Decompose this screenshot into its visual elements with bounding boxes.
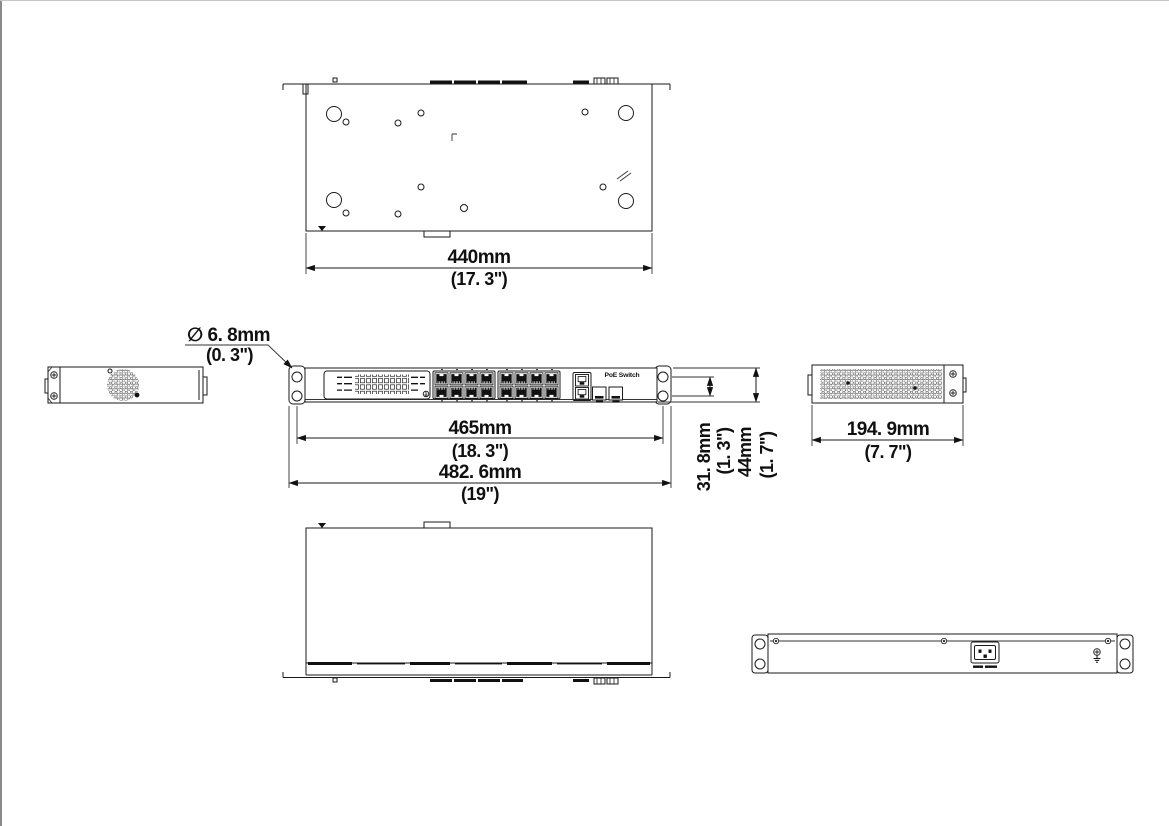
case-screw-icon	[773, 638, 778, 643]
dim-label-overall-width-in: (19")	[461, 484, 500, 504]
dim-label-top-width-mm: 440mm	[448, 247, 511, 268]
rj45-port	[545, 386, 558, 398]
left-side-view	[45, 367, 207, 403]
side-vent-grid-icon	[820, 369, 942, 399]
rear-right-rack-ear	[1117, 635, 1133, 673]
dim-label-overall-height-in: (1. 7")	[757, 431, 777, 479]
rj45-port	[480, 373, 493, 385]
rj45-port	[465, 373, 478, 385]
uplink-rj45-port	[576, 388, 589, 400]
technical-drawing: 440mm (17. 3")	[0, 0, 1169, 826]
rj45-port	[530, 386, 543, 398]
product-label: PoE Switch	[604, 372, 639, 379]
front-width-dimensions: 465mm (18. 3") 482. 6mm (19")	[289, 406, 671, 504]
right-side-view: 194. 9mm (7. 7")	[808, 365, 966, 462]
dim-label-hole-pitch-mm: 31. 8mm	[694, 423, 714, 492]
left-side-tab	[203, 377, 207, 395]
bottom-view-bezel	[283, 662, 670, 678]
bottom-view	[283, 522, 670, 684]
rj45-port	[515, 373, 528, 385]
rack-ear-screw-icon	[950, 371, 957, 378]
bottom-view-top-tab	[424, 522, 450, 528]
dim-label-hole-pitch-in: (1. 3")	[714, 427, 734, 475]
bottom-view-chassis	[306, 528, 652, 663]
top-view-bottom-tab	[424, 231, 450, 237]
dim-label-hole-span-in: (18. 3")	[452, 441, 509, 461]
rj45-port	[465, 386, 478, 398]
front-height-dimensions: 31. 8mm (1. 3") 44mm (1. 7")	[658, 368, 777, 491]
dim-label-hole-diameter-mm: ∅ 6. 8mm	[187, 325, 270, 346]
dim-label-top-width-in: (17. 3")	[451, 269, 508, 289]
rack-ear-screw-icon	[950, 390, 957, 397]
side-fan-vent-icon	[107, 369, 139, 401]
rj45-port	[500, 386, 513, 398]
top-view: 440mm (17. 3")	[283, 78, 670, 289]
rj45-port	[435, 373, 448, 385]
rear-left-rack-ear	[752, 635, 768, 673]
ground-mark-icon	[423, 391, 429, 397]
rj45-port	[450, 373, 463, 385]
uplink-rj45-port	[576, 375, 589, 387]
rj45-port	[500, 373, 513, 385]
case-screw-icon	[1105, 638, 1110, 643]
dim-label-overall-width-mm: 482. 6mm	[439, 462, 522, 483]
power-rating-text-mark	[973, 666, 983, 668]
rear-view	[752, 634, 1133, 673]
power-rating-text-mark	[985, 666, 997, 668]
ear-hole-diameter-callout: ∅ 6. 8mm (0. 3")	[185, 325, 292, 368]
rack-ear-screw-icon	[51, 393, 58, 400]
rj45-port	[545, 373, 558, 385]
front-view: PoE Switch ∅ 6. 8mm (0. 3") 465mm (18. 3…	[185, 325, 777, 504]
led-grid	[355, 375, 409, 395]
rj45-port	[515, 386, 528, 398]
bottom-view-port-marks	[333, 678, 618, 684]
depth-dimension: 194. 9mm (7. 7")	[812, 405, 963, 462]
rj45-port	[530, 373, 543, 385]
dim-label-hole-diameter-in: (0. 3")	[206, 345, 254, 365]
rj45-port	[435, 386, 448, 398]
dim-label-depth-mm: 194. 9mm	[847, 419, 930, 440]
top-view-chassis	[306, 84, 652, 231]
top-view-port-marks	[430, 78, 618, 84]
bottom-view-triangle-marker	[318, 523, 326, 528]
dim-label-depth-in: (7. 7")	[864, 442, 912, 462]
dim-label-overall-height-mm: 44mm	[735, 427, 755, 477]
case-screw-icon	[135, 393, 140, 398]
dim-label-hole-span-mm: 465mm	[449, 418, 512, 439]
page: 440mm (17. 3")	[0, 0, 1169, 826]
case-screw-icon	[941, 638, 946, 643]
top-view-width-dimension: 440mm (17. 3")	[306, 233, 652, 289]
rack-ear-screw-icon	[51, 372, 58, 379]
rj45-port	[480, 386, 493, 398]
rj45-port	[450, 386, 463, 398]
